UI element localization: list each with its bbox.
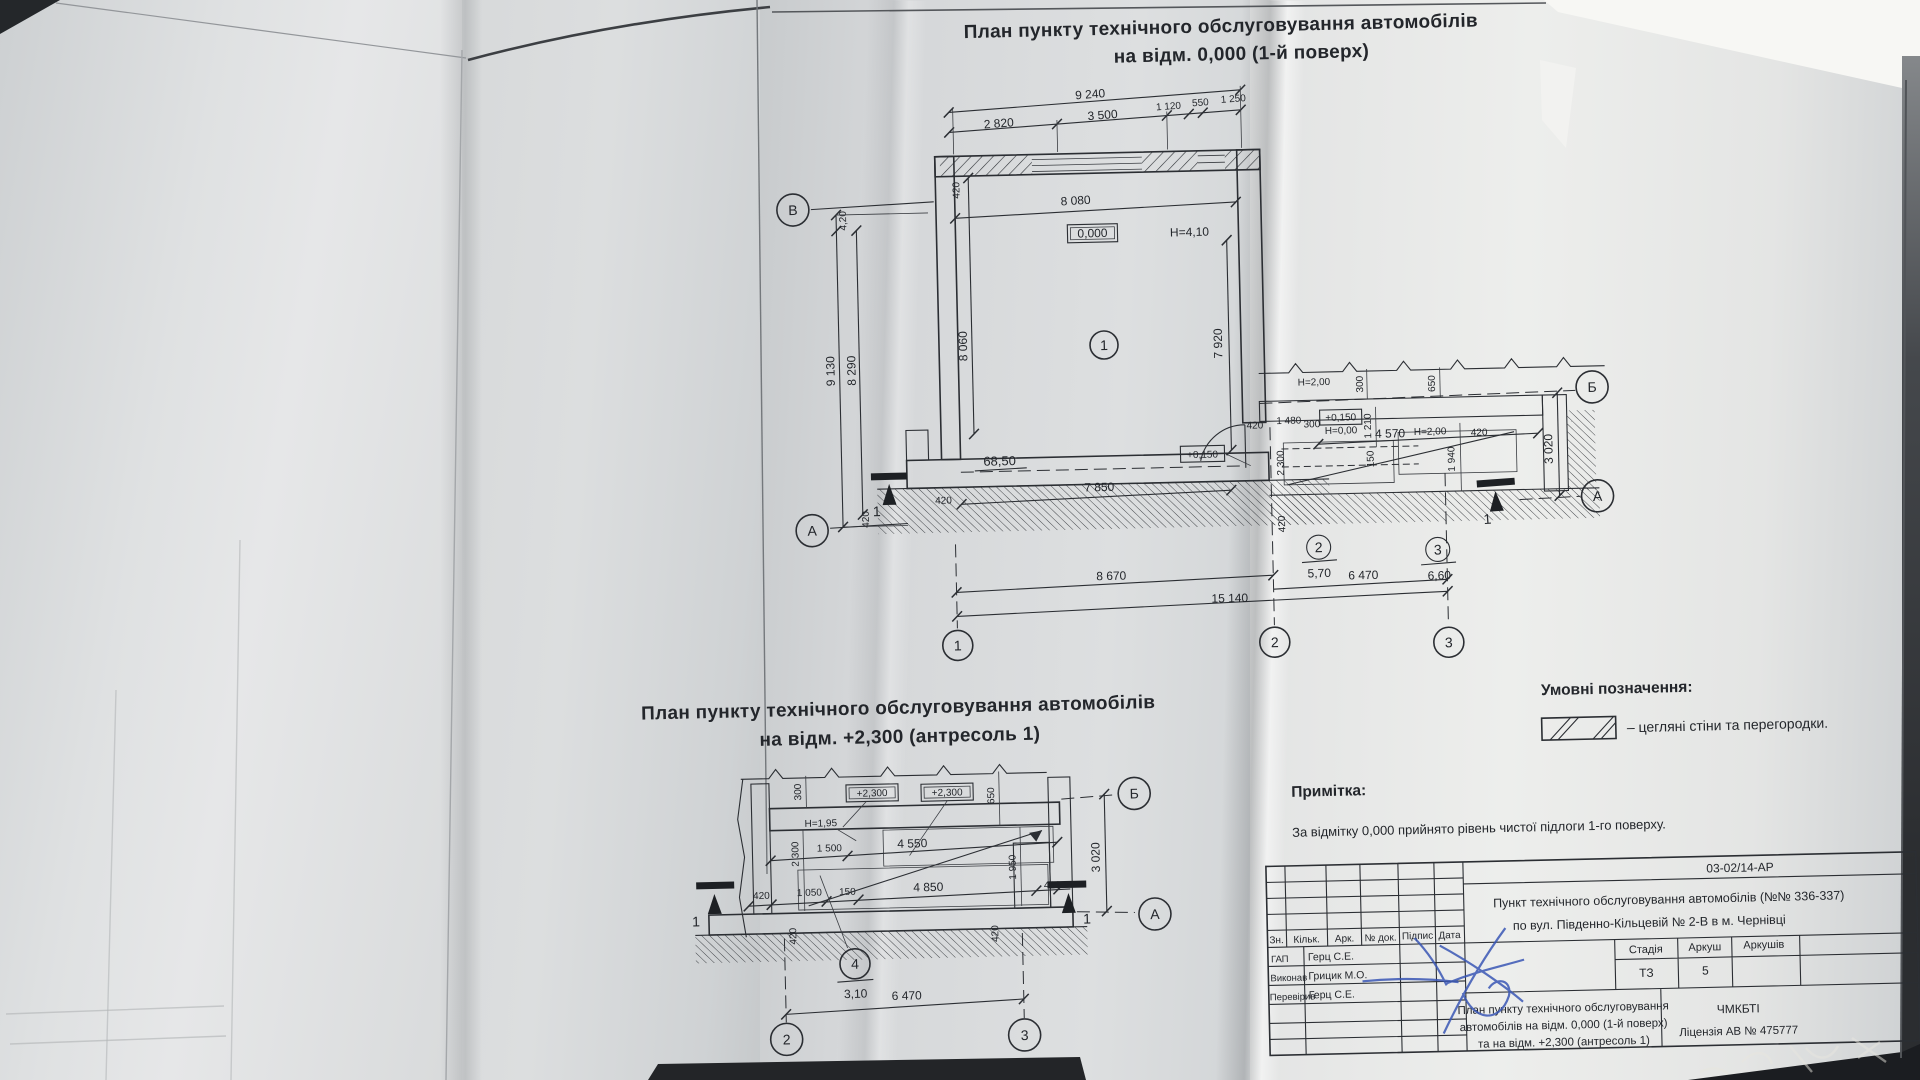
level-2300: +2,300	[932, 787, 964, 799]
dim: 1 250	[1220, 93, 1246, 106]
dim: 420	[1246, 420, 1263, 431]
grid-axis-B: Б	[1587, 379, 1597, 395]
sheet-value: 5	[1702, 963, 1709, 977]
dim: 420	[788, 927, 799, 944]
role-vykonav: Виконав	[1270, 973, 1307, 985]
level-0150: +0,150	[1325, 412, 1357, 424]
grid-axis-1: 1	[954, 637, 962, 653]
room4-number: 4	[851, 956, 859, 972]
dim: 4 550	[897, 836, 928, 851]
legend-title: Умовні позначення:	[1541, 679, 1693, 699]
plan1-bottom-dims: 8 670 6 470 15 140	[951, 561, 1453, 621]
level-0150: +0,150	[1187, 449, 1219, 461]
sheets-label: Аркушів	[1743, 939, 1784, 952]
grid-axis-V: В	[788, 202, 798, 218]
section-marker-left2: 1	[691, 882, 735, 930]
dim: 3 500	[1087, 107, 1118, 123]
stamp-title-line3: та на відм. +2,300 (антресоль 1)	[1478, 1035, 1650, 1051]
dim: 1 050	[797, 888, 823, 900]
col-doc: № док.	[1364, 933, 1396, 945]
plan2-title-line1: План пункту технічного обслуговування ав…	[641, 692, 1156, 725]
room4-area: 3,10	[844, 987, 868, 1002]
room2-area: 5,70	[1307, 566, 1331, 581]
dim: 8 670	[1096, 569, 1127, 584]
role-gap: ГАП	[1271, 954, 1289, 965]
dim: 8 080	[1060, 193, 1091, 209]
sheet-label: Аркуш	[1688, 941, 1721, 954]
project-line1: Пункт технічного обслуговування автомобі…	[1493, 888, 1845, 910]
dim: 420	[753, 891, 770, 902]
level-0000: 0,000	[1077, 226, 1108, 241]
dim: 9 130	[823, 356, 838, 387]
name-gap: Герц С.Е.	[1308, 950, 1354, 963]
project-line2: по вул. Південно-Кільцевій № 2-В в м. Че…	[1513, 913, 1786, 933]
dim: 3 020	[1541, 433, 1556, 464]
org-name: ЧМКБТІ	[1717, 1001, 1760, 1016]
col-zn: Зн.	[1269, 935, 1284, 946]
grid-axis-B: Б	[1129, 785, 1139, 801]
dim: 1 500	[817, 843, 843, 855]
room1-tag: 1	[1090, 331, 1119, 360]
plan1-grid: В А Б А 1 2 3	[777, 176, 1618, 673]
dim: 420	[990, 925, 1001, 942]
dim: 6 470	[1348, 568, 1379, 583]
dim: 420	[1277, 515, 1288, 532]
grid-axis-3: 3	[1021, 1027, 1029, 1043]
dim: 1 950	[1008, 854, 1020, 880]
dim: 300	[1303, 419, 1320, 430]
note-title: Примітка:	[1291, 782, 1366, 801]
room3-number: 3	[1434, 541, 1442, 557]
grid-axis-A: А	[1593, 488, 1603, 504]
dim: 1 480	[1276, 416, 1302, 428]
grid-axis-2: 2	[1271, 634, 1279, 650]
name-vykonav: Грицик М.О.	[1308, 969, 1367, 982]
dim: 1 210	[1363, 413, 1375, 439]
level-2300: +2,300	[857, 788, 889, 800]
dim: 3 020	[1088, 842, 1103, 873]
note: Примітка: За відмітку 0,000 прийнято рів…	[1291, 775, 1666, 839]
height-note: Н=4,10	[1170, 225, 1210, 240]
dim: 550	[1192, 97, 1210, 109]
legend-wall-swatch	[1542, 716, 1616, 740]
dim: 2 300	[790, 841, 802, 867]
ground-hatch	[695, 927, 1088, 964]
room1-area-tag: 68,50	[974, 453, 1026, 471]
dim: 15 140	[1211, 591, 1248, 606]
level-mark-0000: 0,000	[1067, 224, 1117, 243]
level-mark-0150-a: +0,150	[1180, 445, 1250, 468]
blueprint-drawing: План пункту технічного обслуговування ав…	[0, 0, 1920, 1080]
level-mark-0150-b: +0,150	[1320, 409, 1362, 425]
stamp-title-line2: автомобілів на відм. 0,000 (1-й поверх)	[1460, 1017, 1668, 1034]
plan2: План пункту технічного обслуговування ав…	[641, 692, 1174, 1060]
room2-number: 2	[1315, 539, 1323, 555]
legend-item: – цегляні стіни та перегородки.	[1627, 715, 1829, 736]
dim: 650	[1427, 375, 1438, 392]
dim: 6 470	[892, 988, 923, 1003]
height-note: Н=2,00	[1414, 426, 1447, 438]
dim: 8 290	[844, 355, 859, 386]
section-marker-right2: 1	[1048, 880, 1091, 927]
section-number: 1	[1083, 910, 1091, 926]
dim: 9 240	[1075, 86, 1106, 102]
dim: 150	[1365, 450, 1376, 467]
height-note: Н=2,00	[1298, 377, 1331, 389]
plan2-walls	[692, 763, 1088, 964]
plan1-title: План пункту технічного обслуговування ав…	[964, 10, 1479, 71]
dim: 8 060	[956, 331, 971, 362]
height-note: Н=1,95	[804, 818, 837, 830]
dim: 420	[951, 181, 962, 198]
dim: 650	[986, 787, 997, 804]
col-kilk: Кільк.	[1293, 934, 1319, 946]
dim: 300	[1355, 375, 1366, 392]
room2-tag: 2 5,70	[1301, 535, 1337, 581]
name-pereviriv: Герц С.Е.	[1309, 988, 1355, 1001]
dim: 420	[935, 495, 952, 506]
section-number: 1	[873, 503, 881, 519]
blueprint-photo: План пункту технічного обслуговування ав…	[0, 0, 1920, 1080]
dim: 7 920	[1211, 328, 1226, 359]
doc-number: 03-02/14-АР	[1706, 860, 1774, 876]
org-license: Ліцензія АВ № 475777	[1679, 1024, 1798, 1039]
room1-area: 68,50	[983, 453, 1016, 469]
note-text: За відмітку 0,000 прийнято рівень чистої…	[1292, 816, 1666, 839]
dim: 4,20	[838, 211, 849, 231]
dim: 1 940	[1446, 446, 1458, 472]
dim: 4 570	[1375, 426, 1406, 441]
height-note: Н=0,00	[1325, 425, 1358, 437]
stage-value: ТЗ	[1639, 966, 1654, 980]
plan1-title-line2: на відм. 0,000 (1-й поверх)	[1114, 41, 1370, 68]
plan2-title-line2: на відм. +2,300 (антресоль 1)	[759, 724, 1040, 751]
col-date: Дата	[1438, 930, 1461, 942]
dim: 1 120	[1156, 101, 1182, 114]
stamp-people-rows: ГАП Герц С.Е. Виконав Грицик М.О. Переві…	[1269, 950, 1368, 1003]
title-block: Зн. Кільк. Арк. № док. Підпис Дата ГАП Г…	[1266, 852, 1920, 1056]
plan1-top-dims: 9 240 2 820 3 500 1 120 550 1 250	[943, 83, 1247, 155]
dim: 2 820	[983, 115, 1014, 131]
legend: Умовні позначення: – цегляні стіни та пе…	[1541, 676, 1829, 740]
plan1: План пункту технічного обслуговування ав…	[773, 8, 1617, 673]
section-number: 1	[692, 913, 700, 929]
dim: 2 300	[1275, 450, 1287, 476]
dim: 150	[839, 887, 856, 898]
stage-label: Стадія	[1629, 943, 1663, 956]
plan1-title-line1: План пункту технічного обслуговування ав…	[964, 10, 1479, 43]
grid-axis-2: 2	[783, 1031, 791, 1047]
grid-axis-3: 3	[1445, 634, 1453, 650]
grid-axis-A: А	[1150, 906, 1160, 922]
section-number: 1	[1483, 511, 1492, 528]
room1-number: 1	[1100, 337, 1108, 353]
dim: 300	[793, 783, 804, 800]
dim: 420	[1471, 427, 1488, 438]
grid-axis-A: А	[807, 523, 817, 539]
plan2-dims: 300 650 2 300 1 500 4 550 1 950 420 1 05…	[741, 769, 1114, 1020]
plan2-title: План пункту технічного обслуговування ав…	[641, 692, 1156, 754]
plan1-left-dims: 4,20 9 130 8 290 420	[820, 208, 935, 532]
dim: 7 850	[1084, 480, 1115, 495]
dim: 4 850	[913, 880, 944, 895]
col-ark: Арк.	[1335, 933, 1355, 944]
